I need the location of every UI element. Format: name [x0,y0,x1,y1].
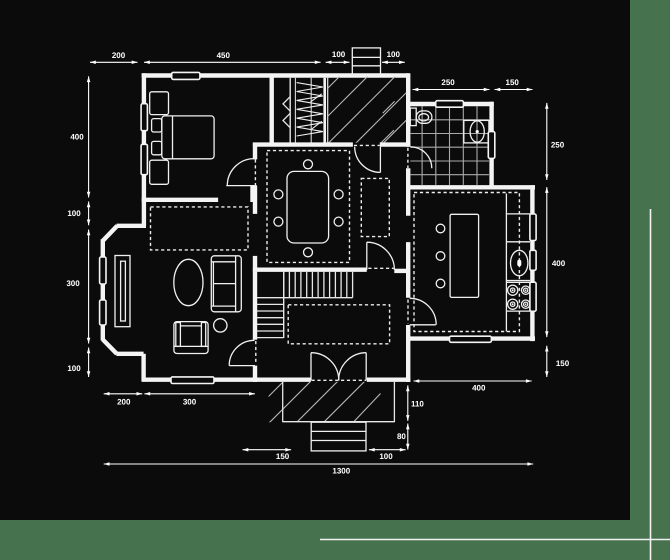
svg-text:400: 400 [552,259,566,268]
svg-text:250: 250 [551,141,565,150]
svg-text:100: 100 [67,209,81,218]
svg-text:450: 450 [217,51,231,60]
svg-text:400: 400 [70,132,84,141]
svg-text:200: 200 [117,398,131,407]
svg-text:100: 100 [387,50,401,59]
svg-text:150: 150 [506,78,520,87]
svg-text:100: 100 [332,50,346,59]
svg-text:300: 300 [66,279,80,288]
svg-text:200: 200 [112,51,126,60]
svg-text:150: 150 [276,452,290,461]
svg-text:250: 250 [441,78,455,87]
svg-text:400: 400 [472,383,486,392]
svg-text:1300: 1300 [332,466,350,475]
svg-text:110: 110 [411,399,424,408]
svg-text:100: 100 [67,364,81,373]
svg-text:150: 150 [556,359,570,368]
svg-text:100: 100 [379,452,393,461]
svg-text:300: 300 [183,398,197,407]
svg-text:80: 80 [397,432,406,441]
